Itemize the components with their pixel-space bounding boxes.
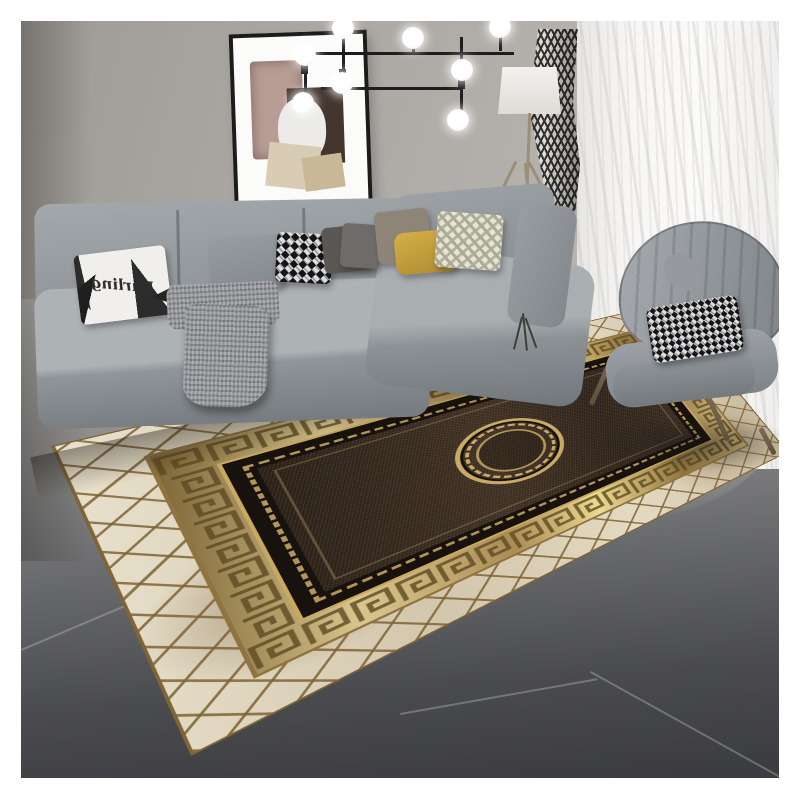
light-bulb [292, 92, 314, 114]
chandelier-rod [296, 52, 514, 55]
light-bulb [331, 72, 353, 94]
living-room-photo: Darling [21, 21, 779, 778]
light-bulb [294, 44, 316, 66]
lamp-shade [498, 67, 561, 114]
light-bulb [447, 109, 469, 131]
pillow-geometric-script: Darling [73, 245, 173, 326]
knit-throw-drape [182, 304, 270, 409]
pillow-script-text: Darling [91, 273, 156, 296]
light-bulb [402, 27, 424, 49]
art-tan-shape [301, 153, 345, 192]
pillow-cream-chevron [434, 211, 504, 271]
light-bulb [451, 59, 473, 81]
